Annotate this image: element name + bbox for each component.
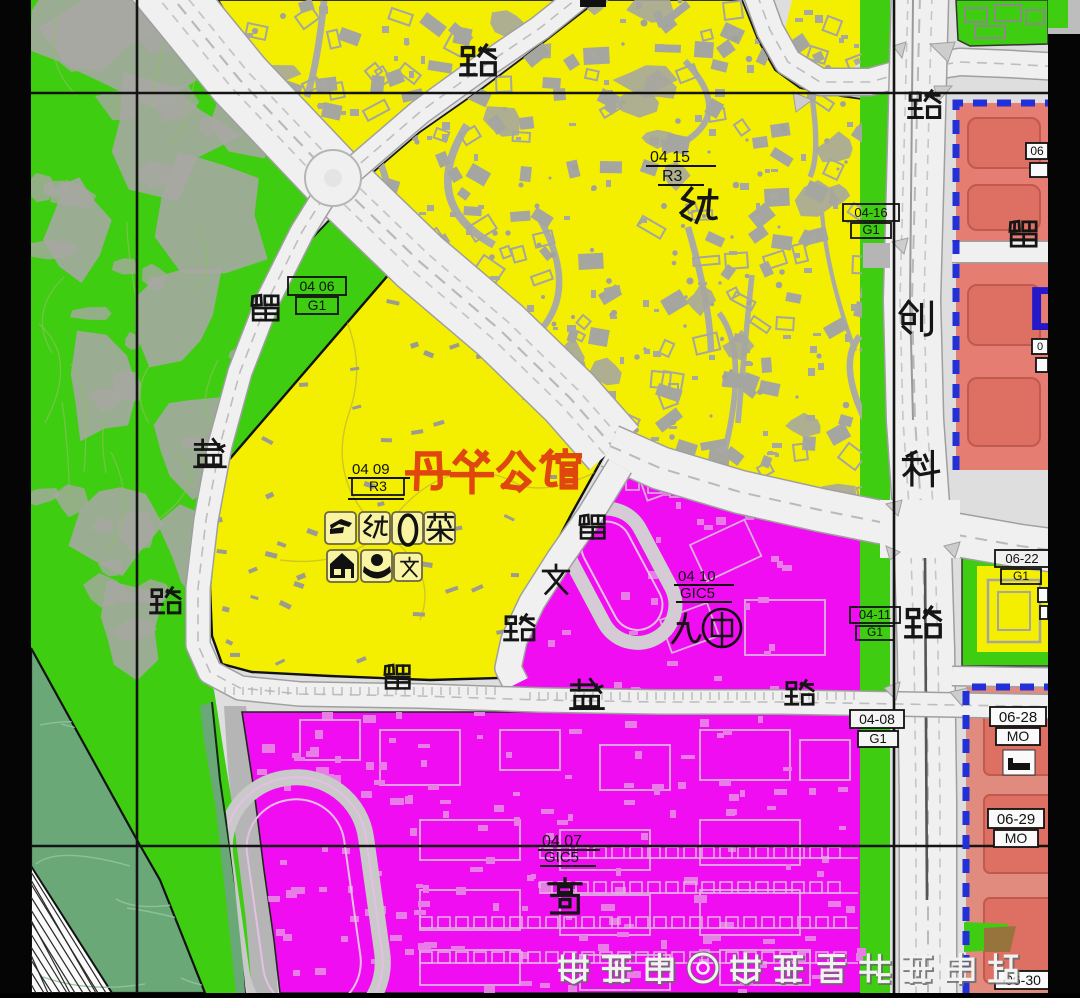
svg-text:G1: G1 [862,222,879,237]
svg-text:GIC5: GIC5 [680,585,715,602]
svg-text:04 10: 04 10 [678,568,716,585]
svg-text:04 15: 04 15 [650,149,690,166]
svg-text:G1: G1 [308,297,327,313]
svg-text:MO: MO [1007,728,1030,744]
svg-text:06-29: 06-29 [997,811,1035,828]
svg-text:MO: MO [1005,830,1028,846]
svg-text:04-11: 04-11 [859,607,891,622]
svg-text:04-08: 04-08 [859,711,895,727]
svg-text:04 09: 04 09 [352,461,390,478]
svg-text:06: 06 [1030,144,1044,158]
svg-text:04 07: 04 07 [542,833,582,850]
svg-text:R3: R3 [662,168,683,185]
svg-text:06-28: 06-28 [999,709,1037,726]
svg-text:GIC5: GIC5 [544,849,579,866]
svg-text:04 06: 04 06 [299,278,334,294]
svg-text:G1: G1 [867,625,883,639]
svg-text:06-22: 06-22 [1005,551,1038,566]
svg-text:G1: G1 [869,731,886,746]
svg-text:R3: R3 [369,478,387,494]
svg-text:04-16: 04-16 [854,205,887,220]
svg-text:G1: G1 [1013,569,1029,583]
